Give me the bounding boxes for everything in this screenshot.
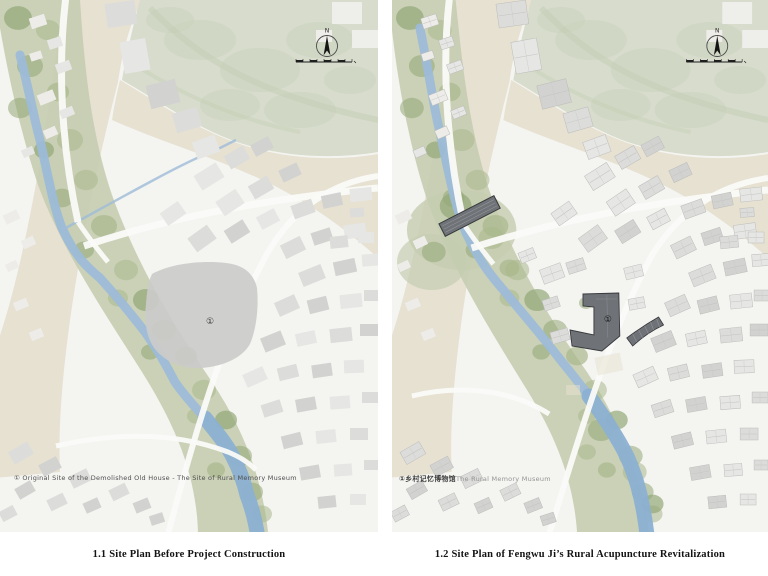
tree-canopy xyxy=(74,170,98,190)
figure-page: ①N ①N ① Original Site of the Demolished … xyxy=(0,0,768,576)
legend-before: ① Original Site of the Demolished Old Ho… xyxy=(14,475,297,482)
village-building xyxy=(350,428,368,440)
village-building xyxy=(730,293,753,309)
caption-after: 1.2 Site Plan of Fengwu Ji’s Rural Acupu… xyxy=(392,549,768,560)
village-building xyxy=(317,495,336,509)
village-building xyxy=(706,429,727,444)
tree-canopy xyxy=(114,260,138,280)
tree-canopy xyxy=(598,462,616,477)
site-marker: ① xyxy=(604,315,612,325)
village-building xyxy=(702,363,724,379)
tree-canopy xyxy=(4,6,32,30)
village-building xyxy=(748,232,764,243)
site-plan-before-map: ①N xyxy=(0,0,378,532)
site-plan-after-map: ①N xyxy=(392,0,768,532)
legend-text-en: The Rural Memory Museum xyxy=(456,475,551,483)
village-building xyxy=(364,460,378,470)
legend-marker: ① xyxy=(14,474,20,482)
demolished-site xyxy=(145,262,257,368)
village-building xyxy=(119,38,150,74)
site-plan-before-panel: ①N xyxy=(0,0,378,532)
village-building xyxy=(708,495,727,509)
village-building xyxy=(754,460,768,470)
tree-canopy xyxy=(566,347,588,366)
village-building xyxy=(344,360,364,374)
village-building xyxy=(511,38,542,74)
village-building xyxy=(740,208,755,218)
village-building xyxy=(362,253,378,266)
village-building xyxy=(315,429,336,444)
village-building xyxy=(752,253,768,266)
caption-before: 1.1 Site Plan Before Project Constructio… xyxy=(0,549,378,560)
legend-text: Original Site of the Demolished Old Hous… xyxy=(22,474,296,482)
tree-canopy xyxy=(578,444,596,459)
village-building xyxy=(754,290,768,301)
village-building xyxy=(362,392,378,403)
village-building xyxy=(334,463,353,476)
village-building xyxy=(752,392,768,403)
village-building xyxy=(350,494,366,505)
village-building xyxy=(330,395,351,409)
village-building xyxy=(350,208,365,218)
village-building xyxy=(720,327,743,343)
village-building xyxy=(329,235,348,249)
tree-canopy xyxy=(499,260,519,277)
village-building xyxy=(496,0,529,28)
village-building xyxy=(358,232,374,243)
village-building xyxy=(750,324,768,336)
village-building xyxy=(339,293,362,309)
village-building xyxy=(329,327,352,343)
village-building xyxy=(720,235,739,249)
village-building xyxy=(720,395,741,409)
tree-canopy xyxy=(400,98,424,118)
village-building xyxy=(364,290,378,301)
village-building xyxy=(349,187,372,202)
village-building xyxy=(740,428,758,440)
village-building xyxy=(311,363,333,379)
legend-text-zh: 乡村记忆博物馆 xyxy=(405,475,456,483)
site-marker: ① xyxy=(206,317,214,327)
village-building xyxy=(740,187,763,202)
north-label: N xyxy=(325,28,330,35)
village-building xyxy=(104,0,137,28)
village-building xyxy=(724,463,743,476)
village-building xyxy=(360,324,378,336)
legend-after: ①乡村记忆博物馆The Rural Memory Museum xyxy=(399,476,551,483)
site-plan-after-panel: ①N xyxy=(392,0,768,532)
village-building xyxy=(740,494,756,505)
north-label: N xyxy=(715,27,719,34)
tree-canopy xyxy=(466,170,490,190)
village-building xyxy=(734,360,754,374)
